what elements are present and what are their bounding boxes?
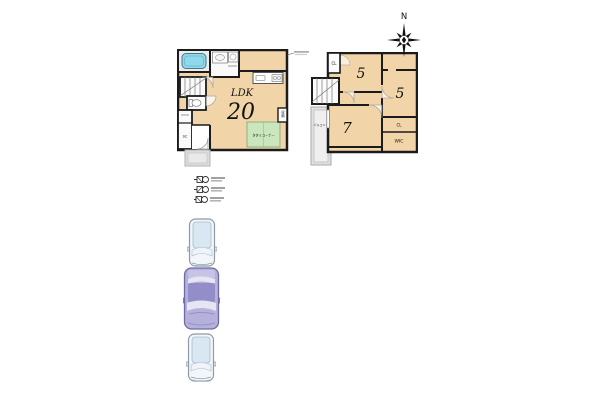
equipment-annotation-rows (194, 175, 230, 205)
balcony-window (327, 110, 330, 128)
tatami-corner: タタミコーナー (247, 122, 280, 147)
stairs-1f (180, 77, 206, 97)
equipment-annotation-row-3 (194, 197, 224, 203)
north-compass-icon: N (384, 9, 424, 59)
bedroom-a-size-label: 5 (357, 66, 366, 82)
closet-a: CL (328, 53, 340, 73)
toilet-room (187, 96, 206, 110)
stairs-2f (312, 78, 339, 104)
parked-car-3 (186, 333, 216, 383)
parked-car-1 (187, 218, 217, 268)
shoe-closet-label: SC (183, 135, 188, 139)
wic-label: WIC (395, 139, 404, 145)
ldk-size-label: 20 (226, 100, 255, 125)
storage-label: 収納 (280, 109, 284, 117)
toilet (192, 100, 201, 107)
ldk-label: LDK (230, 88, 254, 99)
closet-b-label: CL (396, 123, 402, 128)
shoe-closet: SC (178, 110, 192, 149)
floorplan-1f: SC タタミコーナー 収納 LDK 20 (177, 49, 317, 171)
floorplan-2f: バルコニー CL (310, 52, 418, 167)
tatami-label: タタミコーナー (252, 133, 274, 138)
bedroom-c-size-label: 7 (342, 119, 352, 137)
entrance-porch (185, 150, 210, 166)
storage-closet: 収納 (278, 108, 287, 122)
annotation-note-1f (287, 51, 309, 55)
equipment-annotation-row-2 (194, 187, 225, 193)
balcony-label: バルコニー (314, 123, 329, 127)
washroom (210, 50, 239, 77)
floor2-outline (328, 53, 417, 152)
floorplan-page: SC タタミコーナー 収納 LDK 20 (0, 0, 600, 400)
equipment-annotation-row-1 (194, 177, 225, 183)
entrance-hall (192, 125, 210, 150)
north-label: N (401, 12, 407, 22)
closet-a-label: CL (331, 61, 337, 66)
parked-car-2 (183, 267, 220, 331)
bathroom (178, 50, 210, 72)
bedroom-b-size-label: 5 (396, 86, 405, 102)
